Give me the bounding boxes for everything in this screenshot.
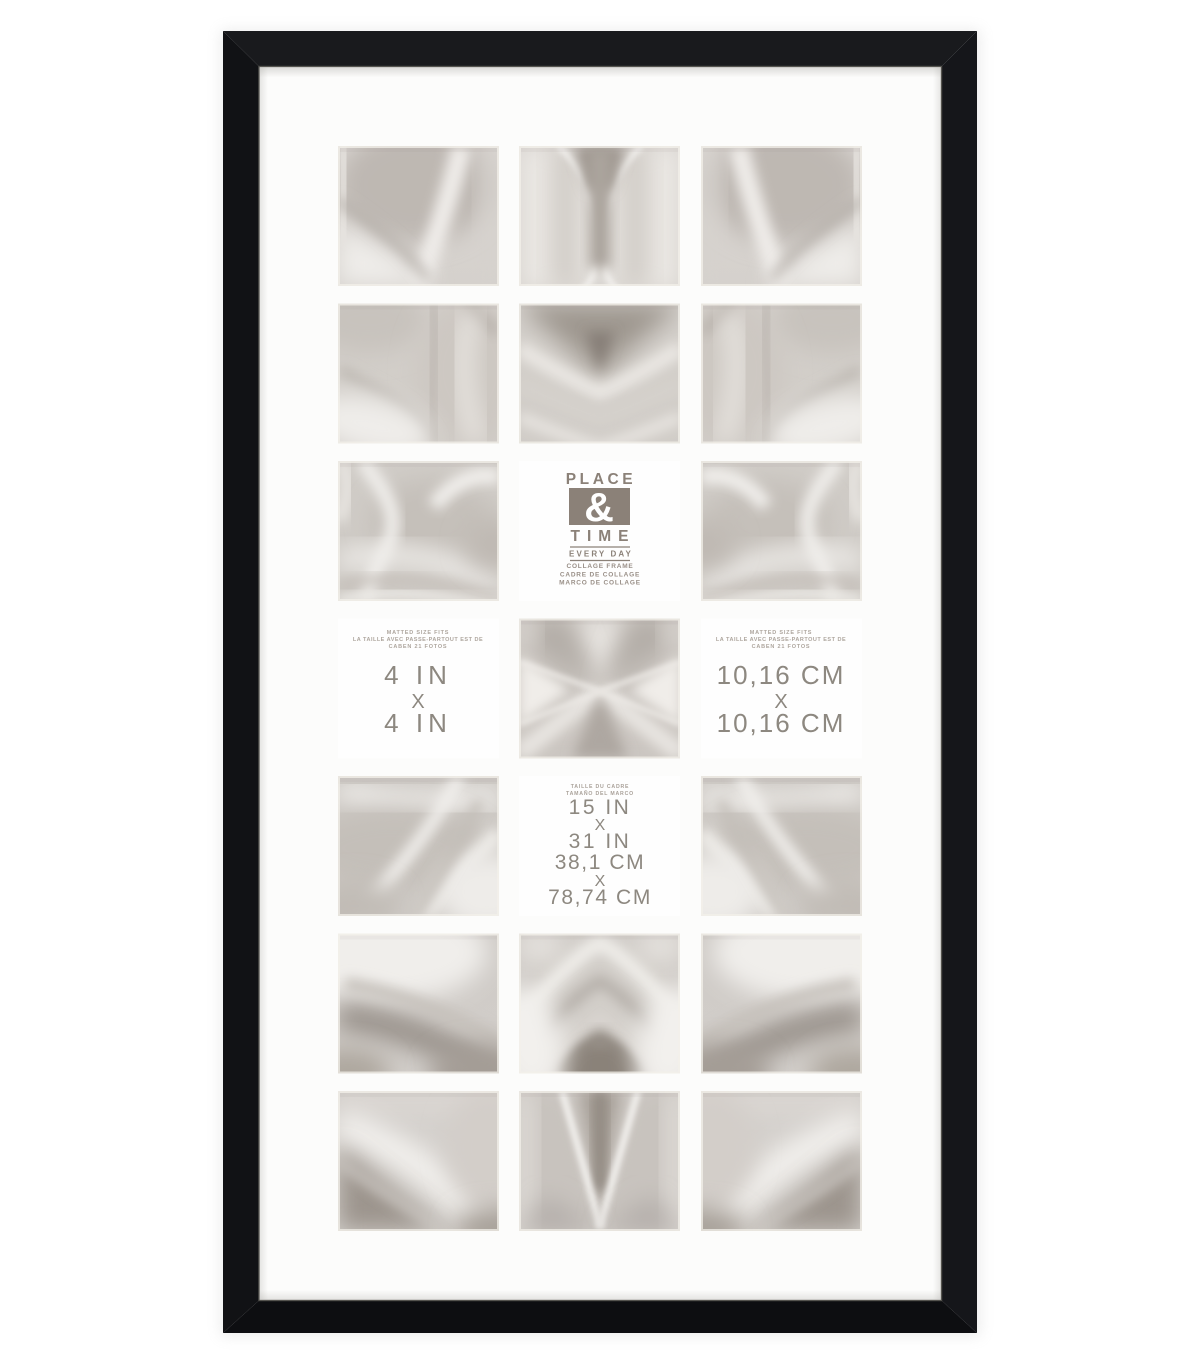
svg-text:EVERY DAY: EVERY DAY [569, 550, 633, 559]
svg-text:CABEN 21 FOTOS: CABEN 21 FOTOS [389, 644, 448, 650]
svg-text:MARCO DE COLLAGE: MARCO DE COLLAGE [559, 580, 641, 587]
svg-text:4 IN: 4 IN [384, 660, 452, 690]
svg-text:COLLAGE FRAME: COLLAGE FRAME [566, 563, 633, 570]
svg-text:4 IN: 4 IN [384, 708, 452, 738]
svg-text:31 IN: 31 IN [569, 830, 632, 853]
svg-text:MATTED SIZE FITS: MATTED SIZE FITS [387, 630, 450, 636]
svg-text:15 IN: 15 IN [569, 796, 632, 819]
svg-text:10,16 CM: 10,16 CM [717, 708, 846, 738]
svg-text:MATTED SIZE FITS: MATTED SIZE FITS [750, 630, 813, 636]
svg-text:CABEN 21 FOTOS: CABEN 21 FOTOS [752, 644, 811, 650]
svg-text:CADRE DE COLLAGE: CADRE DE COLLAGE [560, 572, 640, 579]
svg-text:LA TAILLE AVEC PASSE-PARTOUT E: LA TAILLE AVEC PASSE-PARTOUT EST DE [353, 637, 483, 643]
svg-text:78,74 CM: 78,74 CM [548, 886, 652, 909]
svg-text:TIME: TIME [570, 528, 635, 545]
svg-text:LA TAILLE AVEC PASSE-PARTOUT E: LA TAILLE AVEC PASSE-PARTOUT EST DE [716, 637, 846, 643]
svg-text:TAILLE DU CADRE: TAILLE DU CADRE [571, 784, 630, 790]
svg-text:&: & [584, 484, 614, 530]
svg-text:38,1 CM: 38,1 CM [555, 851, 646, 874]
svg-text:10,16 CM: 10,16 CM [717, 660, 846, 690]
